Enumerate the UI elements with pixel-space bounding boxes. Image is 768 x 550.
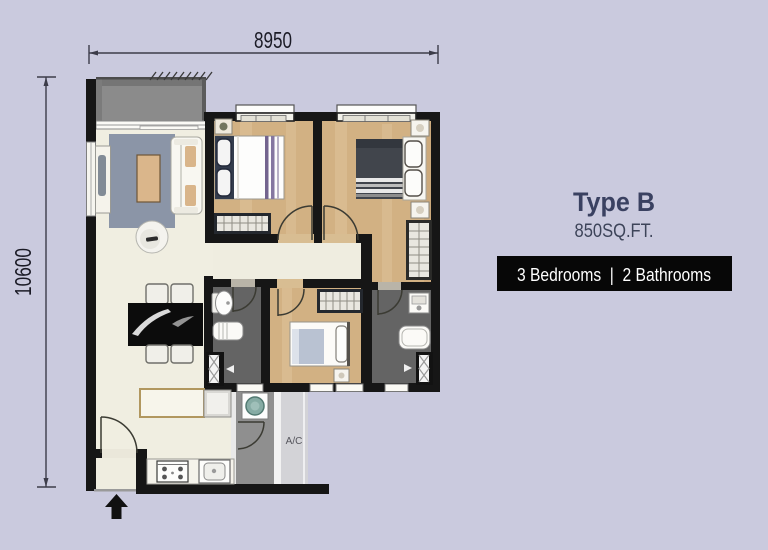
svg-text:3 Bedrooms | 2 Bathrooms: 3 Bedrooms | 2 Bathrooms xyxy=(517,265,711,285)
svg-text:10600: 10600 xyxy=(10,248,36,296)
svg-text:850SQ.FT.: 850SQ.FT. xyxy=(575,220,654,242)
svg-text:8950: 8950 xyxy=(254,27,292,53)
svg-text:A/C: A/C xyxy=(286,436,303,447)
svg-text:Type B: Type B xyxy=(573,187,655,217)
